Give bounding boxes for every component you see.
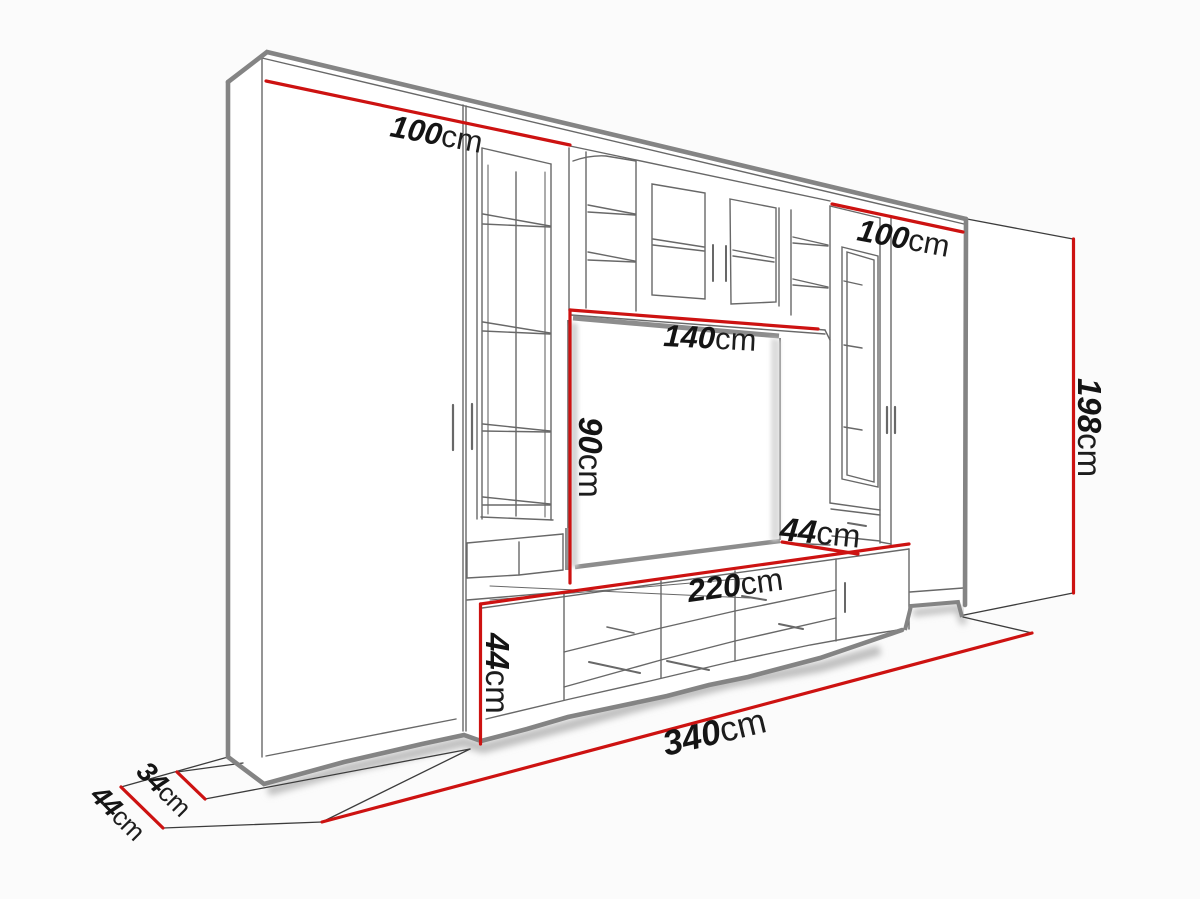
- svg-text:44cm: 44cm: [479, 632, 516, 714]
- svg-text:90cm: 90cm: [572, 417, 609, 498]
- svg-text:44cm: 44cm: [777, 510, 862, 555]
- svg-text:198cm: 198cm: [1071, 378, 1108, 477]
- svg-text:140cm: 140cm: [663, 318, 758, 358]
